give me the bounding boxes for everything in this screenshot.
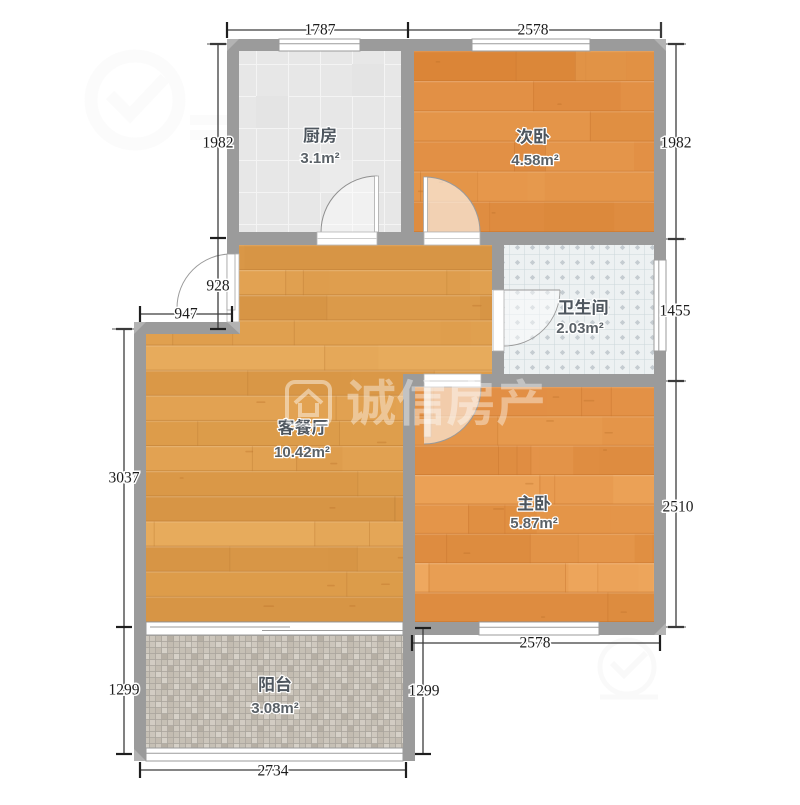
svg-text:2578: 2578 [520, 634, 551, 651]
svg-text:928: 928 [206, 277, 230, 294]
svg-text:1982: 1982 [661, 134, 692, 151]
svg-text:5.87m²: 5.87m² [510, 515, 558, 532]
svg-text:2.03m²: 2.03m² [556, 320, 604, 337]
svg-text:1455: 1455 [660, 302, 691, 319]
svg-text:1787: 1787 [305, 21, 336, 38]
svg-text:2734: 2734 [258, 762, 289, 779]
svg-text:1299: 1299 [109, 681, 140, 698]
svg-text:4.58m²: 4.58m² [511, 152, 559, 169]
svg-text:1982: 1982 [203, 134, 234, 151]
svg-text:3.1m²: 3.1m² [300, 150, 339, 167]
svg-text:3.08m²: 3.08m² [251, 700, 299, 717]
svg-text:3037: 3037 [109, 469, 140, 486]
svg-text:1299: 1299 [409, 682, 440, 699]
svg-text:2510: 2510 [663, 498, 694, 515]
svg-text:10.42m²: 10.42m² [274, 444, 330, 461]
svg-text:947: 947 [174, 305, 198, 322]
svg-text:2578: 2578 [518, 21, 549, 38]
